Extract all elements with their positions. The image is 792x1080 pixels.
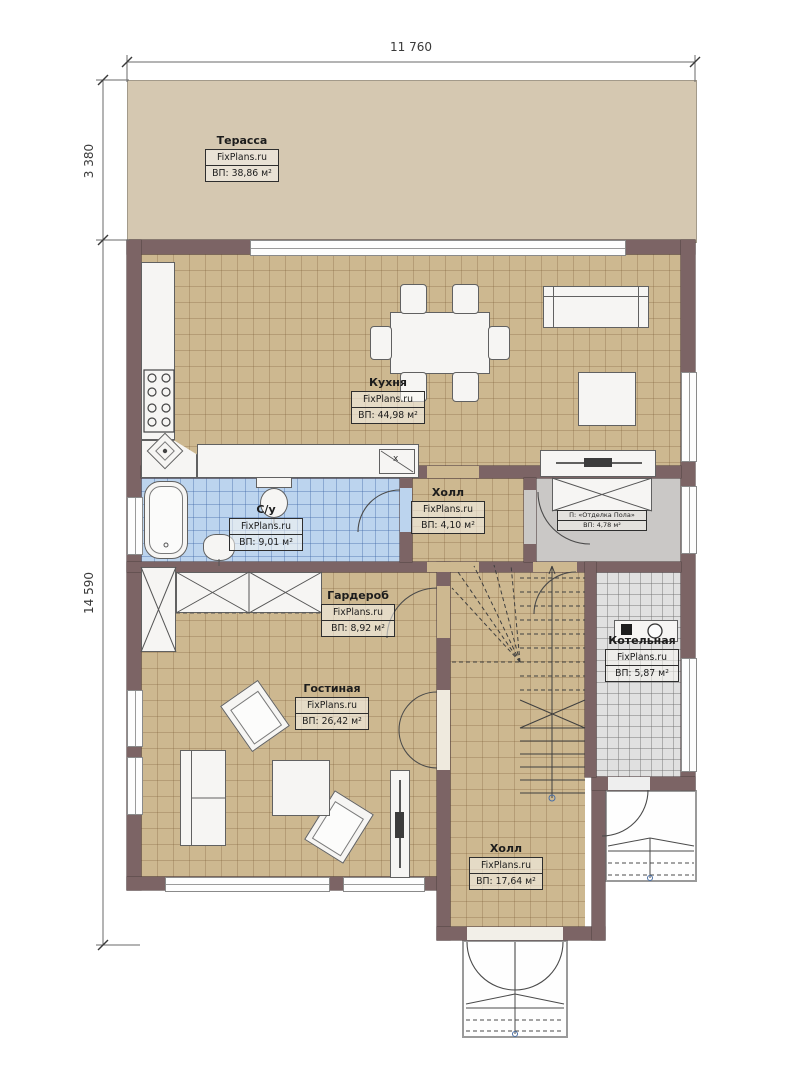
kitchen-info-box: FixPlans.ru ВП: 44,98 м² [351,391,425,424]
dining-chair-top-1 [400,284,427,314]
vestibule-line2: ВП: 4,78 м² [558,520,646,530]
bathroom-name: С/у [228,503,304,516]
vestibule-line1: П: «Отделка Пола» [558,511,646,520]
hall-small-area: ВП: 4,10 м² [412,517,484,533]
living-area: ВП: 26,42 м² [296,713,368,729]
door-gap-entrance [467,927,563,940]
kitchen-label: Кухня FixPlans.ru ВП: 44,98 м² [340,376,436,424]
side-porch [605,790,697,882]
boiler-brand: FixPlans.ru [606,650,678,665]
entrance-porch [462,940,568,1038]
living-sofa-back [181,751,192,845]
window-bathroom-left [127,497,143,555]
terrace-name: Терасса [202,134,282,147]
hall-small-name: Холл [410,486,486,499]
hall-main-name: Холл [464,842,548,855]
entry-door-vestibule-right [681,486,697,554]
hall-main-label: Холл FixPlans.ru ВП: 17,64 м² [464,842,548,890]
kitchen-area: ВП: 44,98 м² [352,407,424,423]
bathtub-inner [149,486,183,554]
window-kitchen-top [250,240,626,256]
wardrobe-closet-tall [141,567,176,652]
kitchen-sofa-back [544,287,648,297]
window-living-left-1 [127,690,143,747]
kitchen-sofa-arm-left [544,287,554,327]
living-name: Гостиная [290,682,374,695]
bathroom-label: С/у FixPlans.ru ВП: 9,01 м² [228,503,304,551]
hall-small-info-box: FixPlans.ru ВП: 4,10 м² [411,501,485,534]
door-gap-boiler-side [608,777,650,790]
opening-kitchen-hall [427,466,479,478]
kitchen-tv-stand [540,450,656,477]
wardrobe-area: ВП: 8,92 м² [322,620,394,636]
wardrobe-name: Гардероб [318,589,398,602]
kitchen-name: Кухня [340,376,436,389]
dining-chair-top-2 [452,284,479,314]
dining-chair-bottom-2 [452,372,479,402]
bathroom-brand: FixPlans.ru [230,519,302,534]
boiler-name: Котельная [600,634,684,647]
hall-main-brand: FixPlans.ru [470,858,542,873]
terrace-label: Терасса FixPlans.ru ВП: 38,86 м² [202,134,282,182]
boiler-label: Котельная FixPlans.ru ВП: 5,87 м² [600,634,684,682]
wall-hall-right [592,777,605,940]
living-label: Гостиная FixPlans.ru ВП: 26,42 м² [290,682,374,730]
dimension-house-height: 14 590 [82,570,96,616]
dimension-top-width: 11 760 [341,40,481,54]
kitchen-brand: FixPlans.ru [352,392,424,407]
vestibule-closet [552,478,652,511]
kitchen-counter-left [141,262,175,440]
floor-plan-canvas: 11 760 3 380 14 590 x [0,0,792,1080]
opening-hall-stairs [427,562,479,572]
window-living-bottom-1 [165,877,330,892]
dining-chair-left [370,326,392,360]
wall-middle [127,562,681,572]
living-brand: FixPlans.ru [296,698,368,713]
vestibule-info-box: П: «Отделка Пола» ВП: 4,78 м² [557,510,647,531]
wardrobe-label: Гардероб FixPlans.ru ВП: 8,92 м² [318,589,398,637]
door-gap-wardrobe [437,586,450,638]
vestibule-label: П: «Отделка Пола» ВП: 4,78 м² [556,510,648,531]
wardrobe-closet-row [176,572,322,613]
living-sofa [180,750,226,846]
terrace-brand: FixPlans.ru [206,150,278,165]
wardrobe-info-box: FixPlans.ru ВП: 8,92 м² [321,604,395,637]
kitchen-sofa-arm-right [638,287,648,327]
kitchen-sink-mark: x [393,454,398,464]
dining-chair-right [488,326,510,360]
bathroom-area: ВП: 9,01 м² [230,534,302,550]
dining-table [390,312,490,374]
window-living-left-2 [127,757,143,815]
kitchen-sofa [543,286,649,328]
window-kitchen-right [681,372,697,462]
living-tv-stand [390,770,410,878]
wall-stairs-boiler [585,562,596,777]
kitchen-side-table [578,372,636,426]
terrace-info-box: FixPlans.ru ВП: 38,86 м² [205,149,279,182]
bathroom-info-box: FixPlans.ru ВП: 9,01 м² [229,518,303,551]
door-gap-vestibule [524,490,536,544]
terrace-area: ВП: 38,86 м² [206,165,278,181]
door-gap-living [437,690,450,770]
hall-main-info-box: FixPlans.ru ВП: 17,64 м² [469,857,543,890]
window-living-bottom-2 [343,877,425,892]
dimension-terrace-height: 3 380 [82,142,96,180]
boiler-info-box: FixPlans.ru ВП: 5,87 м² [605,649,679,682]
hall-small-brand: FixPlans.ru [412,502,484,517]
hall-main-area: ВП: 17,64 м² [470,873,542,889]
coffee-table [272,760,330,816]
hall-small-label: Холл FixPlans.ru ВП: 4,10 м² [410,486,486,534]
wardrobe-brand: FixPlans.ru [322,605,394,620]
living-info-box: FixPlans.ru ВП: 26,42 м² [295,697,369,730]
boiler-area: ВП: 5,87 м² [606,665,678,681]
toilet-tank [256,477,292,488]
door-gap-vestibule-stairs [533,562,577,572]
